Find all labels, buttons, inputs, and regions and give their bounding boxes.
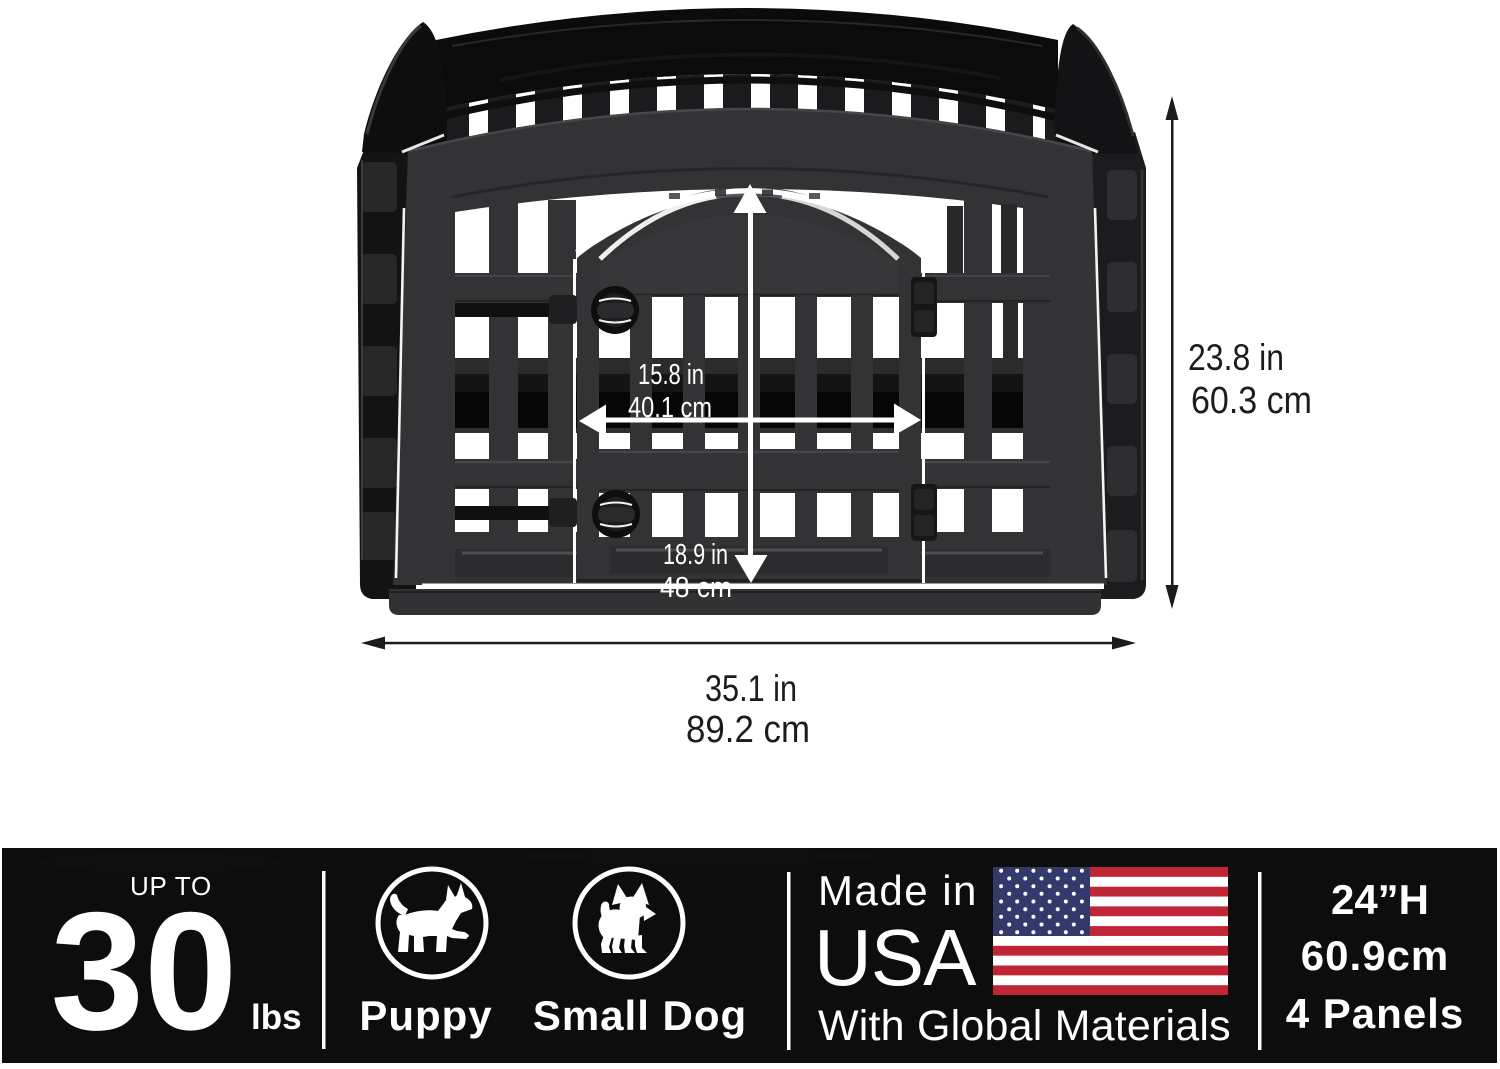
svg-text:18.9 in: 18.9 in — [663, 539, 728, 571]
svg-text:35.1 in: 35.1 in — [705, 668, 797, 709]
svg-text:USA: USA — [814, 913, 977, 1002]
svg-text:Puppy: Puppy — [359, 992, 492, 1039]
svg-text:15.8 in: 15.8 in — [638, 359, 704, 391]
svg-text:With Global Materials: With Global Materials — [818, 1002, 1231, 1050]
svg-text:Small Dog: Small Dog — [533, 992, 747, 1039]
svg-text:lbs: lbs — [251, 998, 302, 1037]
svg-text:40.1 cm: 40.1 cm — [628, 392, 712, 424]
svg-text:24”H: 24”H — [1331, 876, 1429, 923]
svg-text:30: 30 — [51, 877, 238, 1065]
svg-text:Made in: Made in — [818, 867, 978, 914]
svg-text:23.8 in: 23.8 in — [1188, 337, 1284, 378]
svg-text:60.3 cm: 60.3 cm — [1191, 380, 1312, 422]
svg-text:48 cm: 48 cm — [660, 572, 732, 604]
svg-text:60.9cm: 60.9cm — [1301, 932, 1449, 979]
svg-text:89.2 cm: 89.2 cm — [686, 709, 810, 751]
svg-text:4 Panels: 4 Panels — [1286, 990, 1464, 1037]
